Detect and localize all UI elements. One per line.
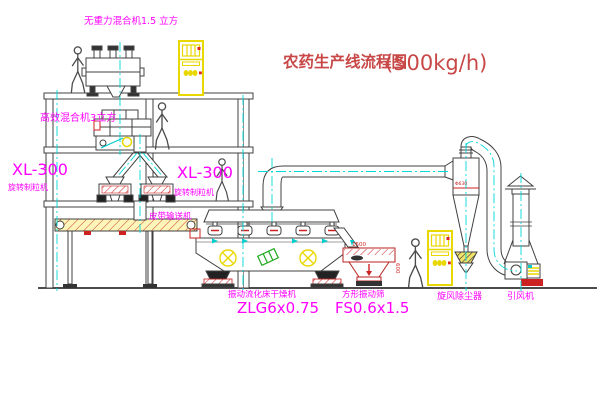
granulator-left xyxy=(97,177,133,202)
page-title-capacity: (500kg/h) xyxy=(385,51,487,75)
gravity-mixer-label: 无重力混合机1.5 立方 xyxy=(84,15,178,27)
sieve-dim-length: 1500 xyxy=(352,242,366,248)
fluid-bed-dryer xyxy=(190,166,445,287)
sieve-dim-width: 600 xyxy=(394,263,400,274)
diagram-canvas: 无重力混合机1.5 立方 农药生产线流程图 (500kg/h) 高效混合机3立方… xyxy=(0,0,600,403)
worker-figure-ground xyxy=(409,239,423,287)
worker-figure-floor2 xyxy=(156,103,170,149)
induced-draft-fan xyxy=(505,262,543,286)
belt-conveyor-label: 皮带输送机 xyxy=(149,211,192,222)
control-cabinet-top xyxy=(179,41,203,95)
cyclone-label: 旋风除尘器 xyxy=(437,290,482,302)
control-cabinet-right xyxy=(428,231,452,285)
high-eff-mixer-label: 高效混合机3立方 xyxy=(40,111,116,124)
sieve-model: FS0.6x1.5 xyxy=(335,299,409,317)
granulator-right-model: XL-300 xyxy=(177,163,233,182)
cyclone-dim-dia: Φ630 xyxy=(455,181,467,187)
granulator-right-name: 旋转制粒机 xyxy=(174,187,214,197)
granulator-left-model: XL-300 xyxy=(12,160,68,179)
granulator-right xyxy=(139,177,175,202)
square-sieve xyxy=(334,228,395,286)
cad-flow-diagram: 无重力混合机1.5 立方 农药生产线流程图 (500kg/h) 高效混合机3立方… xyxy=(0,0,600,403)
granulator-left-name: 旋转制粒机 xyxy=(8,182,48,192)
fan-label: 引风机 xyxy=(507,290,534,302)
gravity-mixer xyxy=(82,46,144,97)
dryer-model: ZLG6x0.75 xyxy=(237,299,319,317)
belt-conveyor xyxy=(55,219,197,288)
